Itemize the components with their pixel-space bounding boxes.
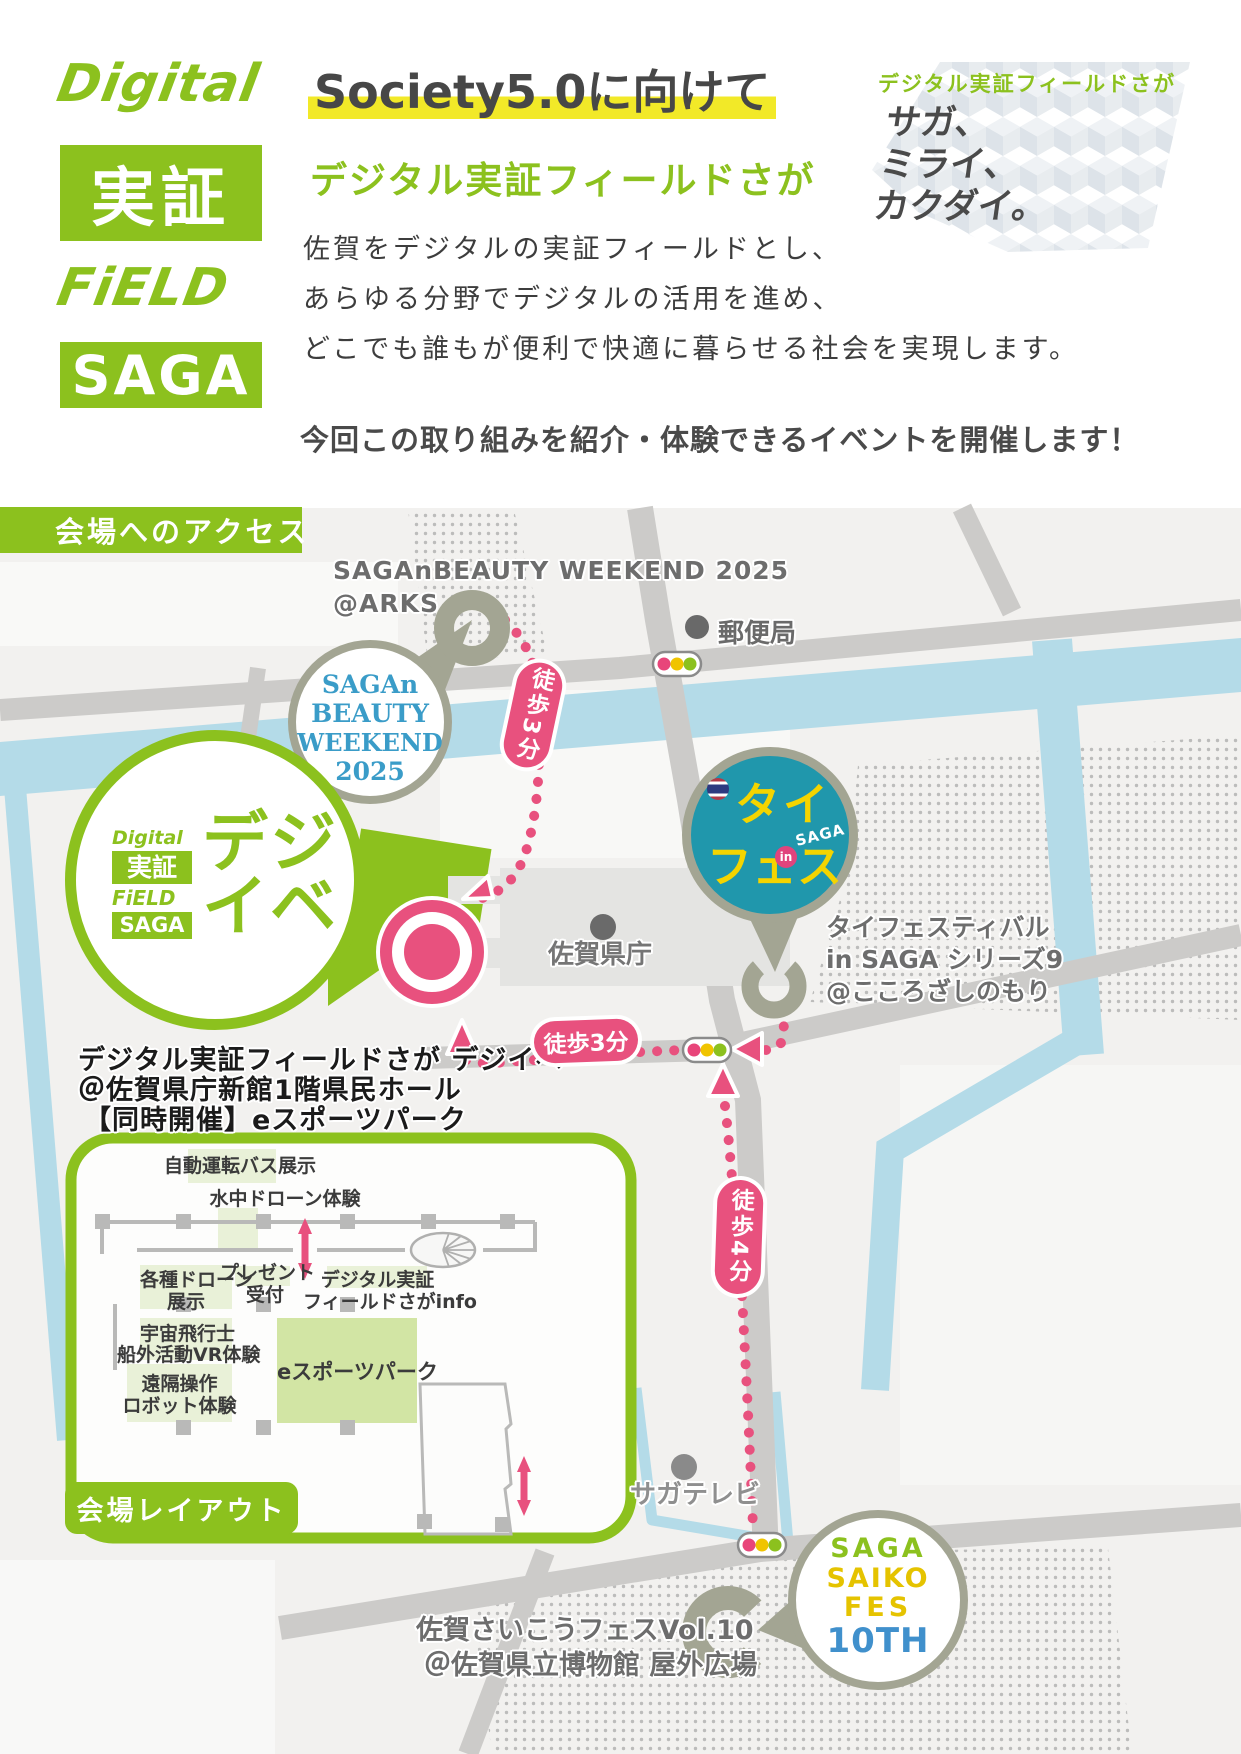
traffic-light-mid xyxy=(683,1038,731,1062)
saiko-label-line1: 佐賀さいこうフェスVol.10 xyxy=(416,1608,754,1647)
page-title: Society5.0に向けて xyxy=(308,56,776,122)
saga-tv-label: サガテレビ xyxy=(630,1474,760,1511)
mini-logo-digital: Digital xyxy=(112,827,192,849)
beauty-label-line1: SAGAnBEAUTY WEEKEND 2025 xyxy=(333,556,789,585)
saiko-badge: SAGA SAIKO FES 10TH xyxy=(788,1510,968,1690)
walk-pill-3min-mid: 徒歩3分 xyxy=(533,1018,638,1064)
beauty-label-line2: @ARKS xyxy=(333,589,439,618)
thaifes-badge-line1: タイ xyxy=(735,768,831,833)
logo-saga-block: SAGA xyxy=(60,342,262,408)
thai-flag-icon xyxy=(707,778,729,800)
mini-logo-field: FiELD xyxy=(112,886,192,910)
dejiibe-balloon: Digital 実証 FiELD SAGA デジ イベ xyxy=(65,730,365,1030)
room-bus-label: 自動運転バス展示 xyxy=(125,1156,355,1177)
mini-logo-jissho: 実証 xyxy=(112,851,192,884)
intro-text: 佐賀をデジタルの実証フィールドとし、 あらゆる分野でデジタルの活用を進め、 どこ… xyxy=(303,225,1079,375)
saiko-label-line2: ＠佐賀県立博物館 屋外広場 xyxy=(424,1643,757,1682)
intro-line-2: あらゆる分野でデジタルの活用を進め、 xyxy=(303,275,1079,325)
saiko-badge-line2: SAIKO xyxy=(796,1564,960,1594)
dejiibe-mini-logo: Digital 実証 FiELD SAGA xyxy=(112,827,192,939)
beauty-badge-line3: WEEKEND xyxy=(296,728,444,757)
beauty-badge-line2: BEAUTY xyxy=(296,699,444,728)
access-section-banner: 会場へのアクセス xyxy=(0,507,302,553)
dejiibe-target-marker xyxy=(376,896,488,1008)
room-esports-label: eスポーツパーク xyxy=(277,1362,417,1383)
thaifes-label-line2: in SAGA シリーズ9 xyxy=(826,940,1063,976)
logo-jissho-block: 実証 xyxy=(60,145,262,241)
slogan-line-3: カクダイ。 xyxy=(871,186,1050,228)
room-info-label2: フィールドさがinfo xyxy=(303,1292,453,1313)
room-robot-label1: 遠隔操作 xyxy=(127,1374,232,1395)
subtitle: デジタル実証フィールドさが xyxy=(310,150,816,204)
room-vr-label2: 船外活動VR体験 xyxy=(117,1345,257,1366)
room-robot-label2: ロボット体験 xyxy=(117,1396,242,1417)
event-announcement: 今回この取り組みを紹介・体験できるイベントを開催します！ xyxy=(300,417,1139,459)
mini-logo-saga: SAGA xyxy=(112,912,192,939)
beauty-badge-line1: SAGAn xyxy=(296,670,444,699)
post-office-label: 郵便局 xyxy=(718,613,796,650)
room-drones-label2: 展示 xyxy=(140,1292,232,1313)
sidenote-slogan: サガ、 ミライ、 カクダイ。 xyxy=(871,102,1062,228)
post-office-dot xyxy=(685,615,709,639)
saiko-badge-line3: FES xyxy=(796,1593,960,1623)
logo-digital: Digital xyxy=(53,54,269,114)
dejiibe-name-line1: デジ xyxy=(202,811,338,875)
venue-layout-inset: 自動運転バス展示 水中ドローン体験 各種ドローン 展示 プレゼント 受付 デジタ… xyxy=(65,1132,637,1544)
thaifes-in-circle: in xyxy=(775,846,797,868)
layout-section-banner: 会場レイアウト xyxy=(65,1482,298,1534)
logo-field: FiELD xyxy=(53,258,269,318)
thaifes-label-line1: タイフェスティバル xyxy=(826,908,1050,944)
walk-pill-4min: 徒歩4分 xyxy=(714,1179,764,1295)
slogan-line-2: ミライ、 xyxy=(877,144,1056,186)
saiko-badge-line4: 10TH xyxy=(796,1623,960,1660)
room-present-label2: 受付 xyxy=(220,1285,310,1306)
spiral-stairs-icon xyxy=(411,1233,475,1267)
prefecture-office-label: 佐賀県庁 xyxy=(548,934,652,971)
thaifes-balloon: タイ フェス in SAGA xyxy=(682,747,858,923)
intro-line-3: どこでも誰もが便利で快適に暮らせる社会を実現します。 xyxy=(303,325,1079,375)
room-info-label1: デジタル実証 xyxy=(320,1270,435,1291)
thaifes-label-line3: @こころざしのもり xyxy=(826,972,1051,1008)
dejiibe-name-line2: イベ xyxy=(202,875,338,939)
slogan-line-1: サガ、 xyxy=(883,102,1062,144)
dejiibe-label-line3: 【同時開催】eスポーツパーク xyxy=(84,1098,467,1137)
sidenote-title: デジタル実証フィールドさが xyxy=(878,68,1176,98)
room-vr-label1: 宇宙飛行士 xyxy=(140,1324,232,1345)
traffic-light-south xyxy=(738,1533,786,1557)
room-underwater-drone-label: 水中ドローン体験 xyxy=(170,1189,400,1210)
room-drones-label1: 各種ドローン xyxy=(140,1270,232,1291)
room-present-label1: プレゼント xyxy=(220,1263,310,1284)
traffic-light-post-office xyxy=(653,652,701,676)
dejiibe-name: デジ イベ xyxy=(202,811,338,939)
headline-highlight: Society5.0に向けて xyxy=(308,65,776,119)
intro-line-1: 佐賀をデジタルの実証フィールドとし、 xyxy=(303,225,1079,275)
saiko-badge-line1: SAGA xyxy=(796,1534,960,1564)
